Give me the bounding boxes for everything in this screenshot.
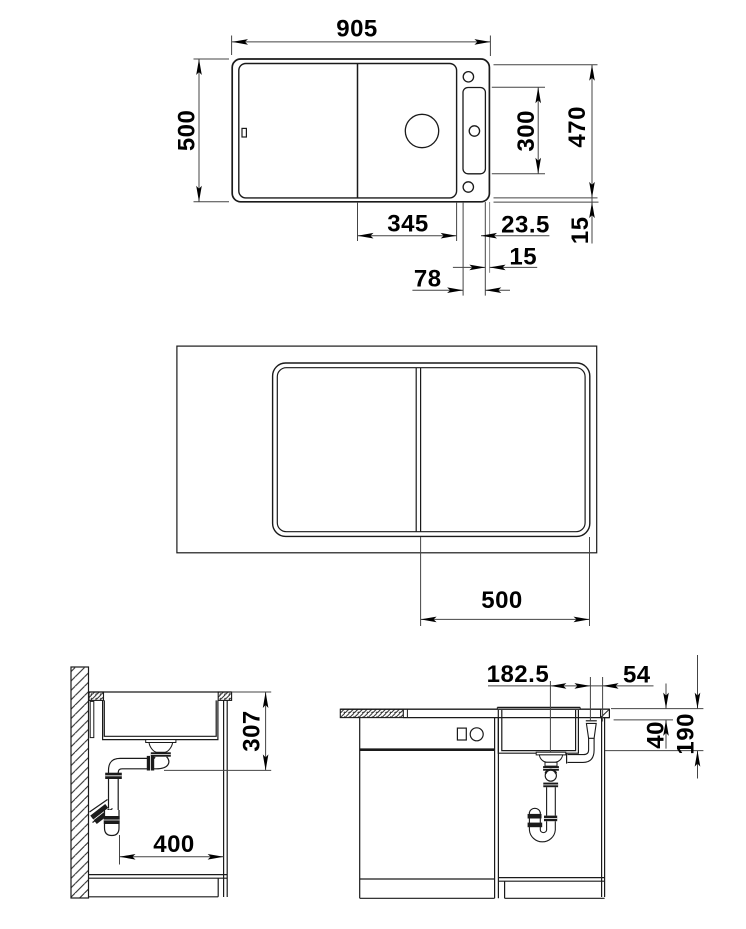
svg-text:500: 500 (481, 587, 523, 614)
svg-text:54: 54 (623, 661, 651, 688)
svg-text:300: 300 (513, 110, 540, 152)
svg-text:182.5: 182.5 (487, 661, 550, 688)
svg-text:470: 470 (564, 106, 591, 148)
svg-text:190: 190 (672, 713, 699, 755)
svg-text:15: 15 (567, 216, 594, 244)
svg-text:15: 15 (509, 243, 537, 270)
svg-text:307: 307 (238, 710, 265, 752)
svg-text:500: 500 (174, 110, 201, 152)
svg-text:905: 905 (336, 15, 378, 42)
svg-text:40: 40 (642, 721, 669, 749)
svg-text:78: 78 (414, 266, 442, 293)
svg-text:345: 345 (387, 211, 429, 238)
svg-text:400: 400 (153, 831, 195, 858)
svg-text:23.5: 23.5 (501, 212, 550, 239)
